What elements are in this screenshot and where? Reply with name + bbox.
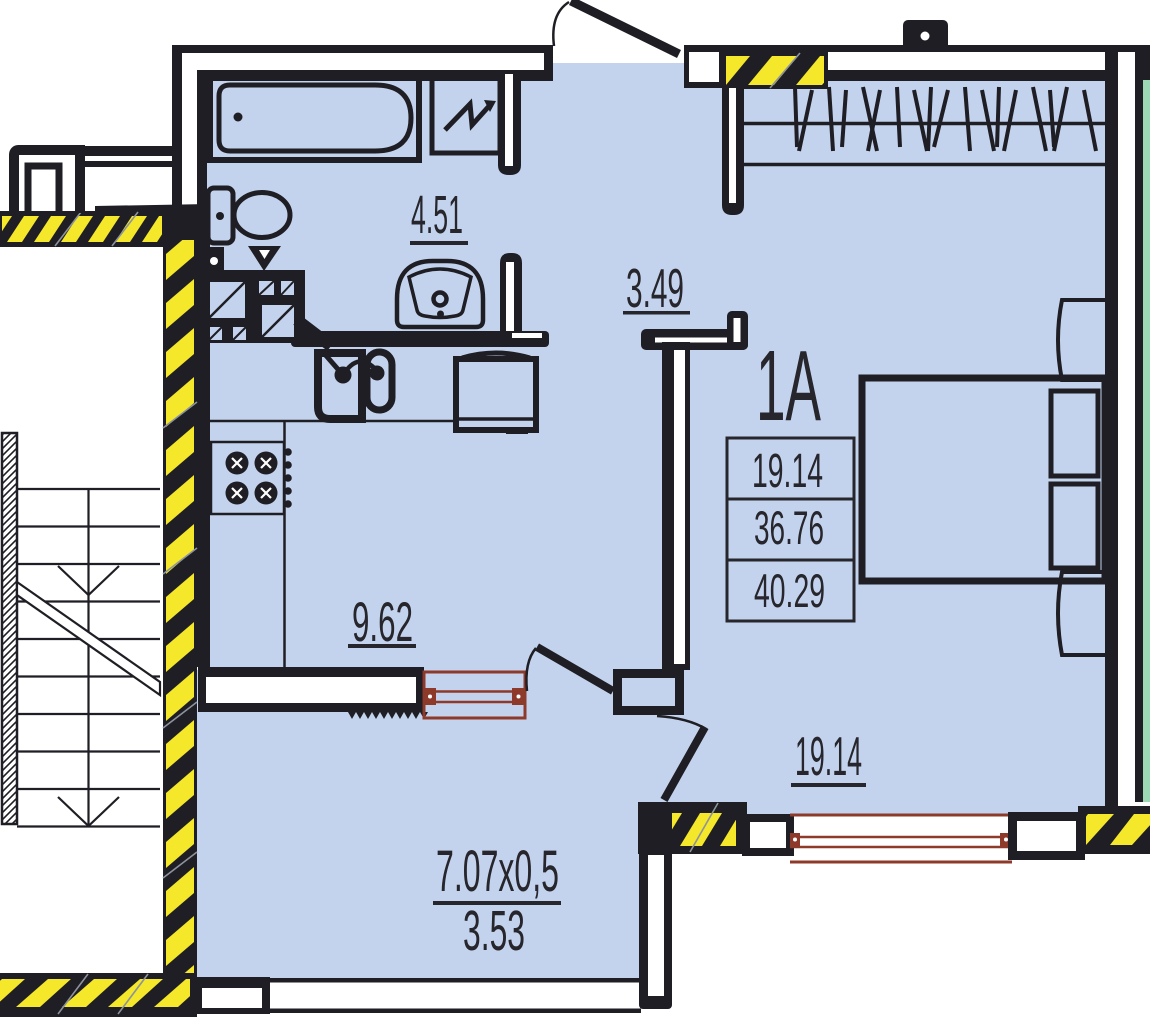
svg-text:19.14: 19.14 <box>752 445 823 498</box>
svg-text:7.07x0,5: 7.07x0,5 <box>436 839 559 904</box>
svg-text:4.51: 4.51 <box>411 185 463 245</box>
svg-text:9.62: 9.62 <box>352 590 413 653</box>
svg-text:19.14: 19.14 <box>795 725 862 787</box>
svg-text:1A: 1A <box>756 330 821 442</box>
svg-text:3.49: 3.49 <box>626 257 684 319</box>
svg-text:40.29: 40.29 <box>754 564 825 617</box>
svg-text:36.76: 36.76 <box>754 501 824 554</box>
svg-text:3.53: 3.53 <box>463 899 525 963</box>
